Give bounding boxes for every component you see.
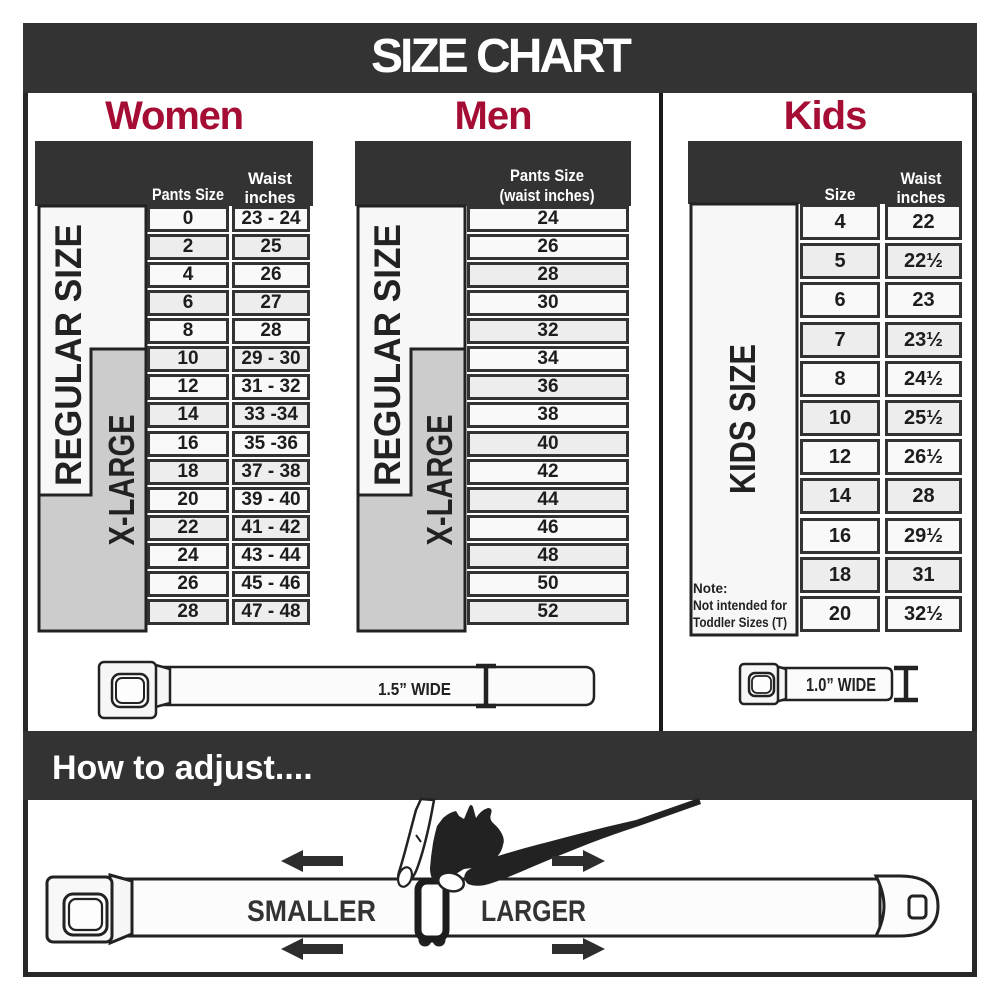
svg-text:Pants Size: Pants Size [152, 185, 224, 204]
svg-text:Waist: Waist [248, 169, 292, 188]
svg-text:Waist: Waist [901, 169, 942, 188]
svg-text:SMALLER: SMALLER [247, 895, 376, 928]
svg-text:LARGER: LARGER [481, 895, 586, 928]
svg-text:Pants Size: Pants Size [510, 166, 584, 185]
svg-text:(waist inches): (waist inches) [500, 186, 595, 205]
svg-text:inches: inches [245, 188, 296, 207]
svg-text:inches: inches [897, 188, 946, 207]
svg-text:Size: Size [825, 185, 856, 204]
